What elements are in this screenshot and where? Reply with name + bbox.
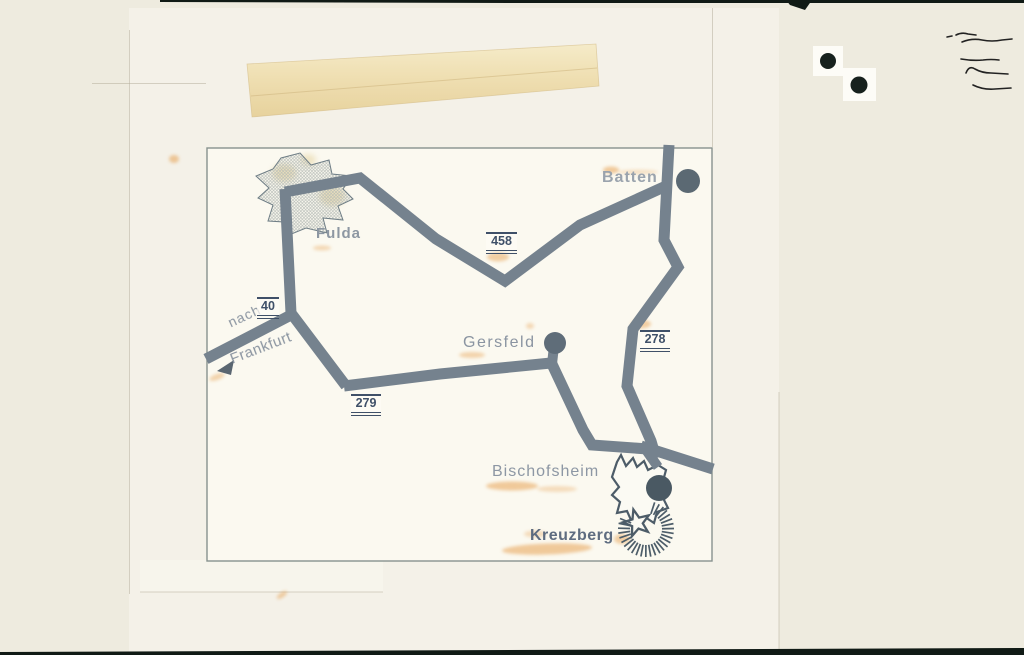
label-batten: Batten [602, 169, 658, 187]
bottom-light-patch [140, 560, 383, 592]
orange-stain [313, 246, 331, 251]
map-illustration [0, 0, 1024, 655]
road-sign-279: 279 [351, 394, 381, 413]
orange-stain [526, 323, 534, 329]
black-dot [820, 53, 836, 69]
label-kreuzberg: Kreuzberg [530, 527, 614, 545]
road-sign-278: 278 [640, 330, 670, 349]
orange-stain [169, 155, 179, 163]
road-sign-458: 458 [486, 232, 517, 251]
batten-dot [676, 169, 700, 193]
orange-stain [459, 352, 485, 358]
label-gersfeld: Gersfeld [463, 334, 535, 352]
road-sign-40: 40 [257, 297, 279, 316]
bischofsheim-dot [646, 475, 672, 501]
black-dot [851, 77, 868, 94]
label-bischofsheim: Bischofsheim [492, 463, 599, 481]
orange-stain [537, 486, 577, 492]
gersfeld-dot [544, 332, 566, 354]
archive-photo-of-road-map: Fulda Batten Gersfeld Bischofsheim Kreuz… [0, 0, 1024, 655]
orange-stain [486, 482, 538, 491]
label-fulda: Fulda [316, 226, 361, 243]
